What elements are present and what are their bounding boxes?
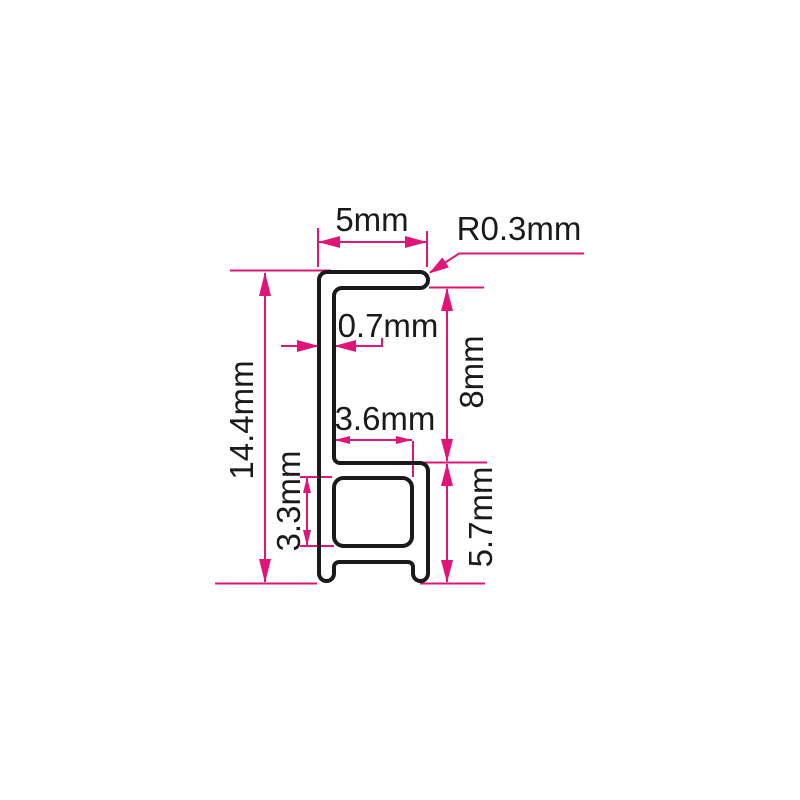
dim-lower-height: 5.7mm [420, 463, 499, 584]
dim-cavity-height: 3.3mm [270, 451, 334, 552]
dim-label-upper-height: 8mm [453, 335, 490, 408]
dim-label-wall-thickness: 0.7mm [338, 307, 439, 344]
arrow-up-icon [259, 272, 271, 296]
arrow-up-icon [441, 463, 453, 486]
dim-label-lower-height: 5.7mm [462, 467, 499, 568]
profile-drawing: 14.4mm 5mm R0.3mm 0.7mm [0, 0, 800, 800]
arrow-leader-icon [429, 257, 449, 273]
dim-label-top-width: 5mm [335, 201, 408, 238]
dim-label-total-height: 14.4mm [223, 360, 260, 479]
arrow-right-icon [396, 436, 412, 444]
dim-label-corner-radius: R0.3mm [457, 210, 582, 247]
dim-corner-radius: R0.3mm [429, 210, 584, 274]
arrow-right-icon [297, 340, 319, 352]
dim-slot-width: 3.6mm [334, 400, 435, 477]
drawing-canvas: 14.4mm 5mm R0.3mm 0.7mm [0, 0, 800, 800]
profile-cavity-outline [334, 478, 412, 546]
dim-top-width: 5mm [318, 201, 427, 267]
arrow-down-icon [441, 560, 453, 583]
arrow-left-icon [334, 436, 350, 444]
arrow-up-icon [441, 288, 453, 311]
arrow-down-icon [259, 559, 271, 583]
dim-wall-thickness: 0.7mm [281, 307, 438, 352]
arrow-down-icon [441, 439, 453, 462]
dim-label-cavity-height: 3.3mm [270, 451, 307, 552]
leader-line [430, 254, 584, 273]
dim-label-slot-width: 3.6mm [335, 400, 436, 437]
